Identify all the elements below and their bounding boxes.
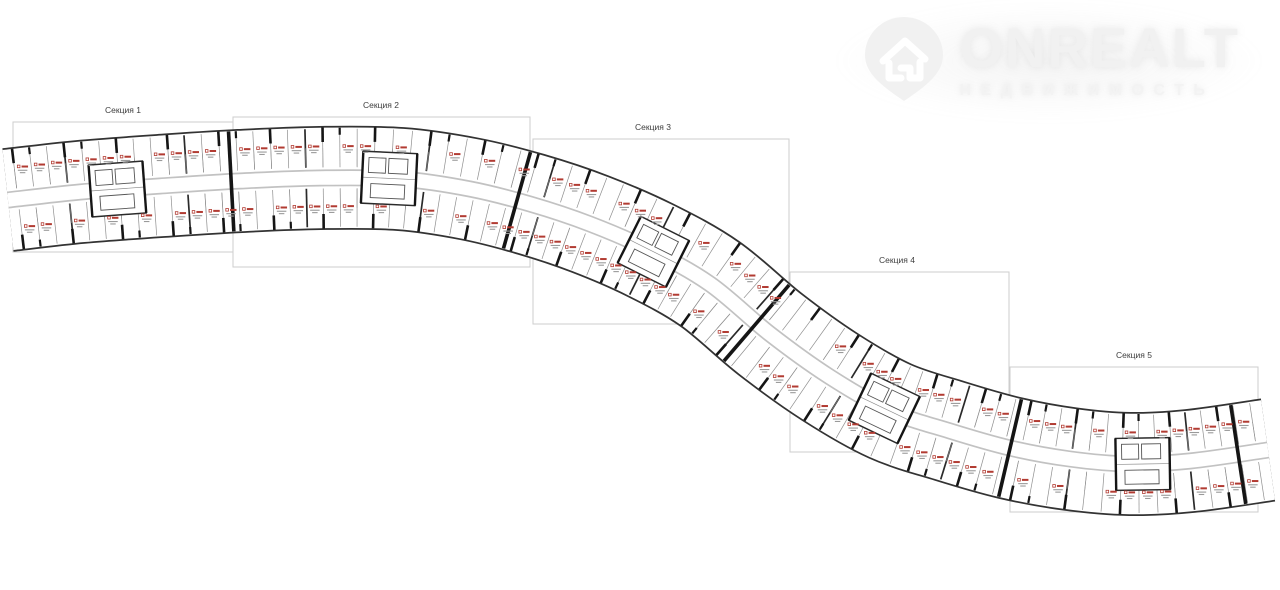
section-label: Секция 3 <box>635 122 671 132</box>
section-label: Секция 5 <box>1116 350 1152 360</box>
floor-plan-page: Секция 1Секция 2Секция 3Секция 4Секция 5… <box>0 0 1280 590</box>
section-label: Секция 1 <box>105 105 141 115</box>
logo-text: ONREALT НЕДВИЖИМОСТЬ <box>960 20 1241 99</box>
core-block <box>361 151 417 205</box>
logo-title: ONREALT <box>960 20 1241 76</box>
pin-shape <box>865 17 943 101</box>
section-label: Секция 2 <box>363 100 399 110</box>
core-block <box>89 161 147 217</box>
onrealt-logo: ONREALT НЕДВИЖИМОСТЬ <box>864 16 1241 102</box>
map-pin-house-icon <box>864 16 944 102</box>
section-label: Секция 4 <box>879 255 915 265</box>
logo-subtitle: НЕДВИЖИМОСТЬ <box>960 83 1241 99</box>
core-block <box>1115 438 1170 491</box>
